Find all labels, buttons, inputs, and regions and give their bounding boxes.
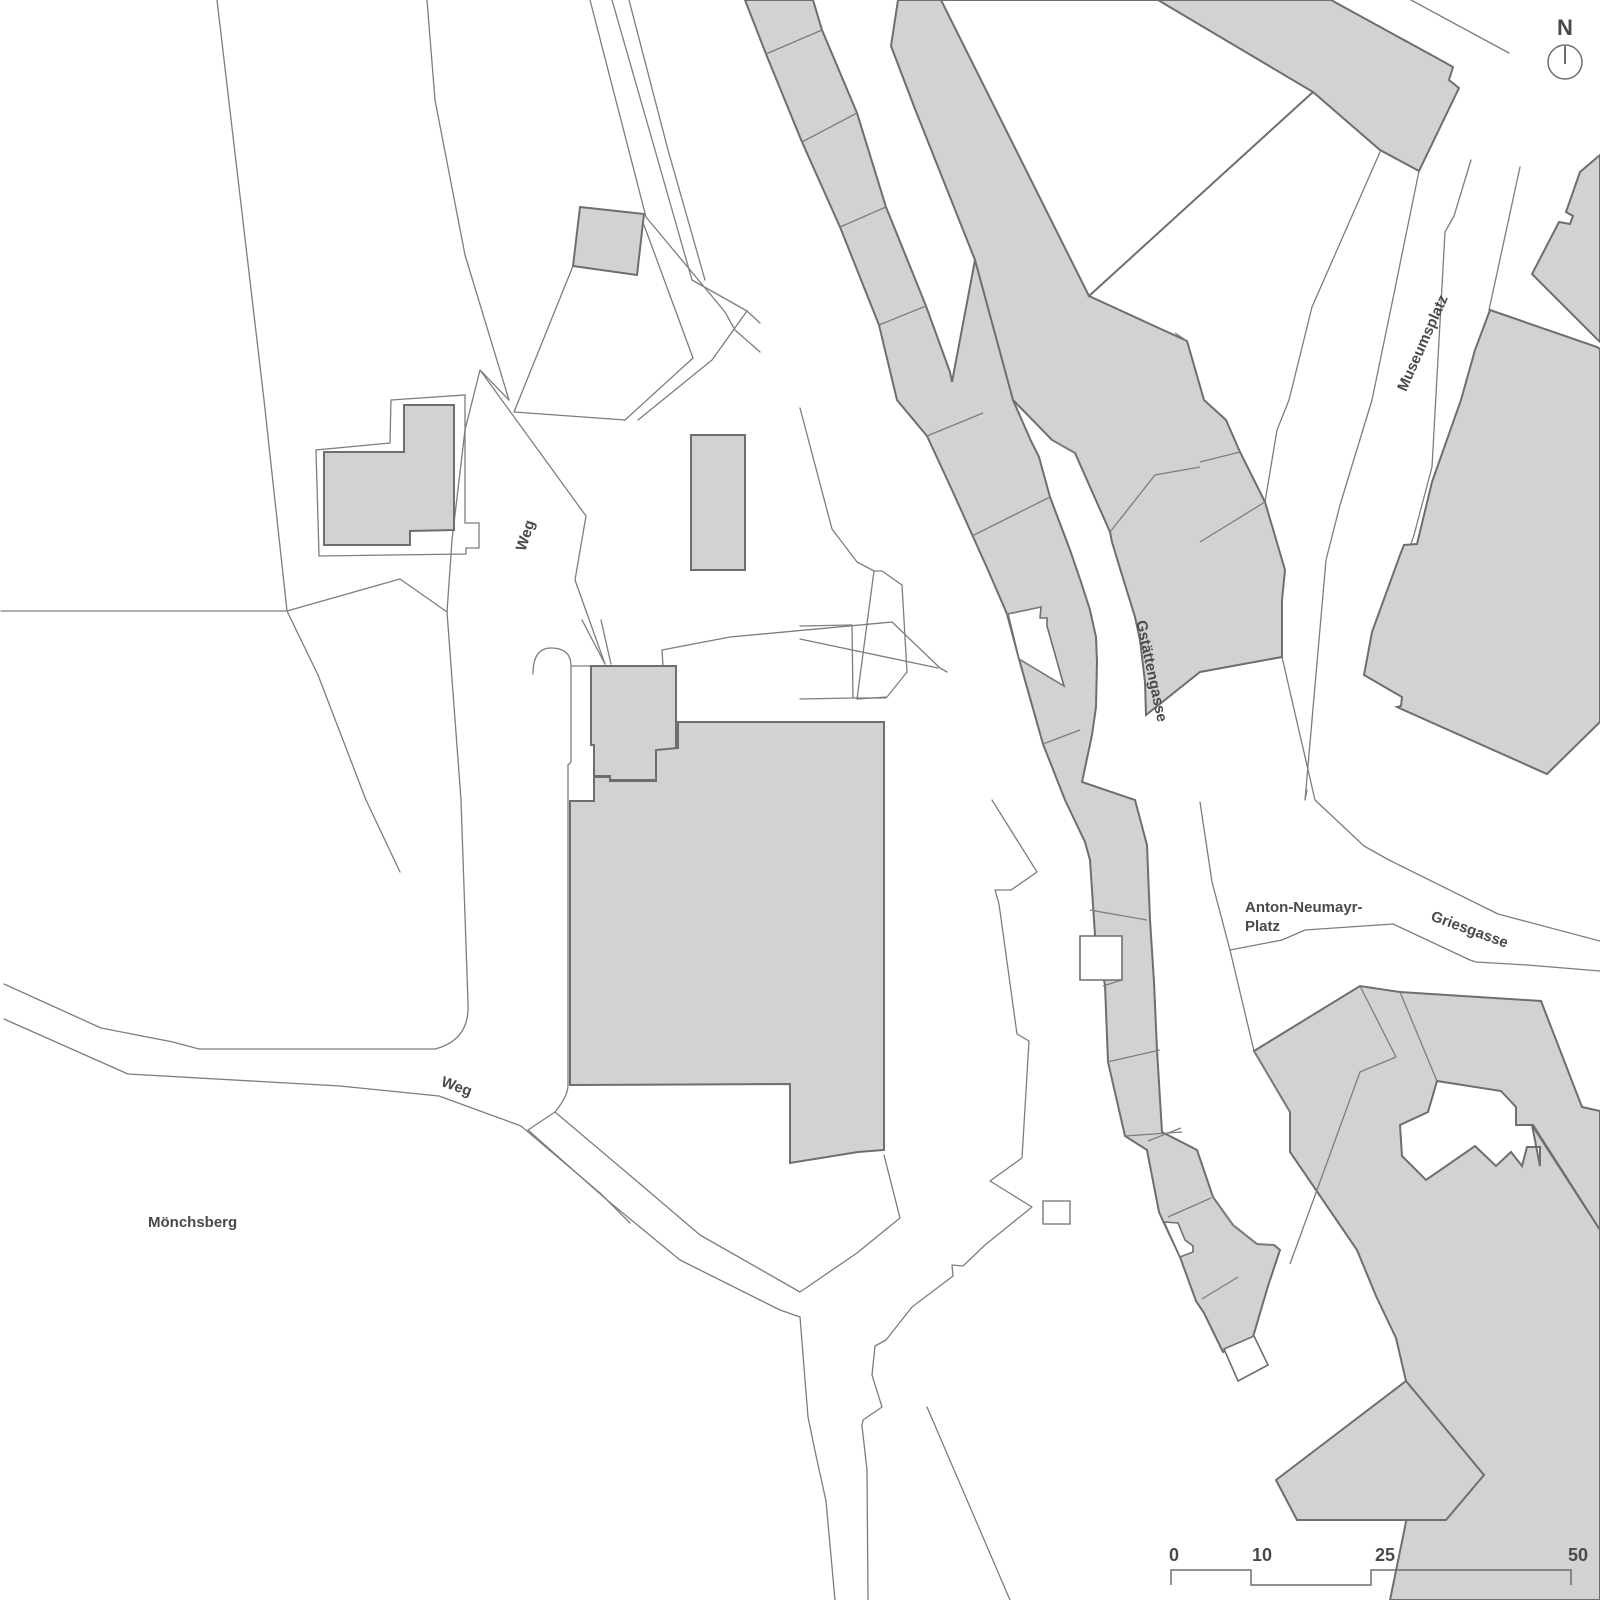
svg-text:10: 10 xyxy=(1252,1545,1272,1565)
svg-text:N: N xyxy=(1557,15,1573,40)
svg-text:Mönchsberg: Mönchsberg xyxy=(148,1214,237,1231)
svg-text:25: 25 xyxy=(1375,1545,1395,1565)
svg-text:0: 0 xyxy=(1169,1545,1179,1565)
svg-text:Anton-Neumayr-: Anton-Neumayr- xyxy=(1245,899,1363,916)
svg-text:Platz: Platz xyxy=(1245,918,1280,935)
svg-text:50: 50 xyxy=(1568,1545,1588,1565)
